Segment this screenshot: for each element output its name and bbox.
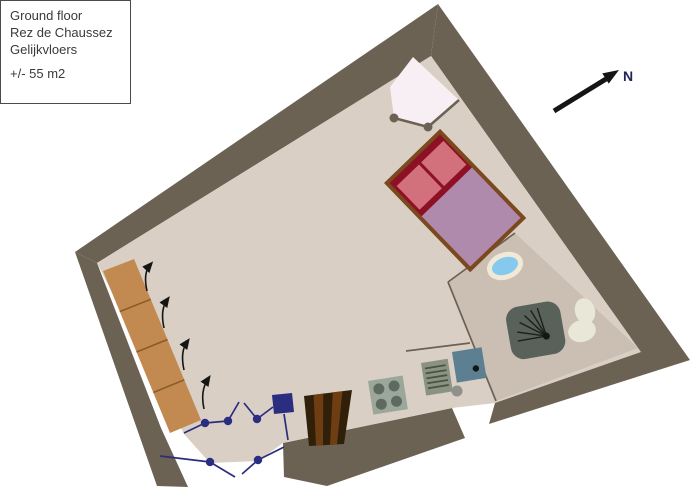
post: [272, 393, 294, 414]
cooktop: [368, 376, 408, 415]
legend-title-fr: Rez de Chaussez: [10, 25, 124, 42]
cooktop-body: [368, 376, 408, 415]
door-pivot: [253, 415, 261, 423]
door-pivot: [224, 417, 232, 425]
legend-box: Ground floor Rez de Chaussez Gelijkvloer…: [0, 0, 131, 104]
door-pivot: [254, 456, 262, 464]
legend-title-en: Ground floor: [10, 8, 124, 25]
legend-title-nl: Gelijkvloers: [10, 42, 124, 59]
north-arrow: N: [554, 68, 633, 111]
kitchen-sink-basin: [452, 347, 486, 382]
floor-plan-page: N Ground floor Rez de Chaussez Gelijkvlo…: [0, 0, 695, 500]
stairs-base: [304, 390, 352, 446]
stairs: [304, 390, 352, 446]
faucet-knob: [452, 386, 463, 397]
north-arrow-shaft: [554, 79, 606, 111]
door-hinge-right: [424, 123, 433, 132]
north-label: N: [623, 68, 633, 84]
legend-area: +/- 55 m2: [10, 66, 124, 83]
door-pivot: [201, 419, 209, 427]
door-pivot: [206, 458, 214, 466]
folding-door-segment: [210, 462, 235, 477]
kitchen-sink: [452, 347, 486, 382]
door-hinge-left: [390, 114, 399, 123]
dish-rack: [421, 359, 453, 396]
shower: [504, 299, 567, 361]
